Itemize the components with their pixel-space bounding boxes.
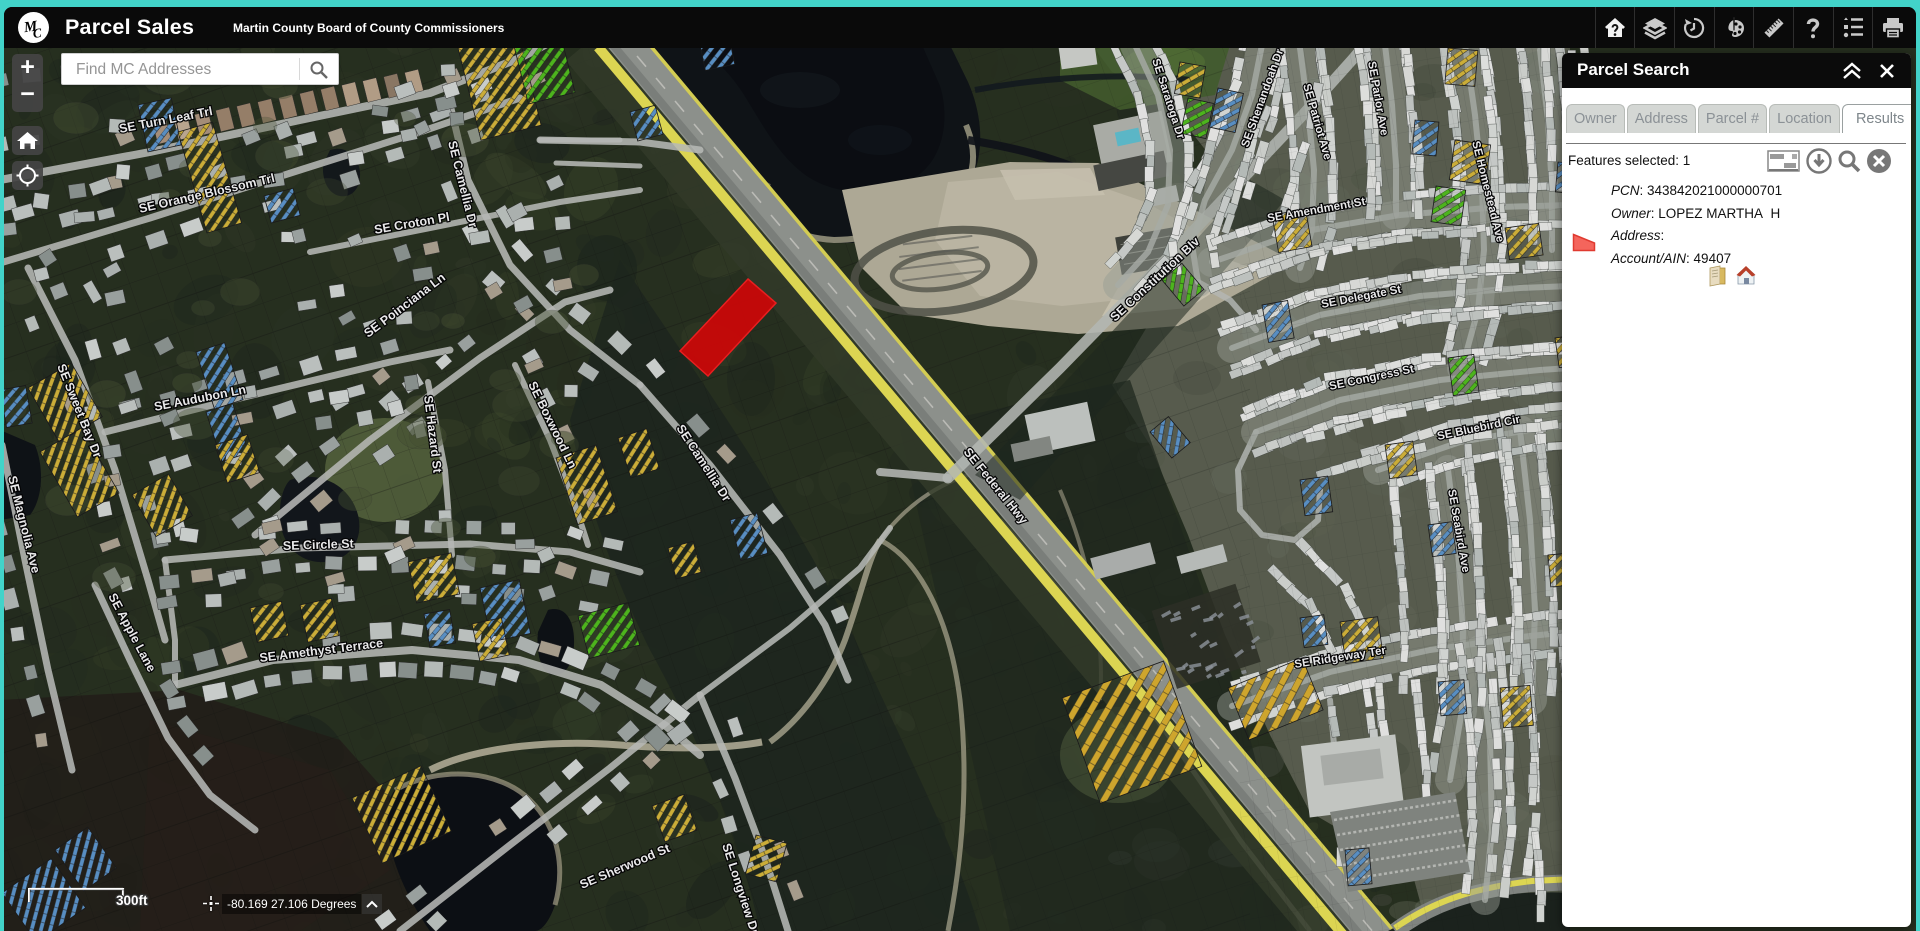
svg-text:300ft: 300ft <box>116 893 148 908</box>
svg-text:C: C <box>32 25 43 41</box>
